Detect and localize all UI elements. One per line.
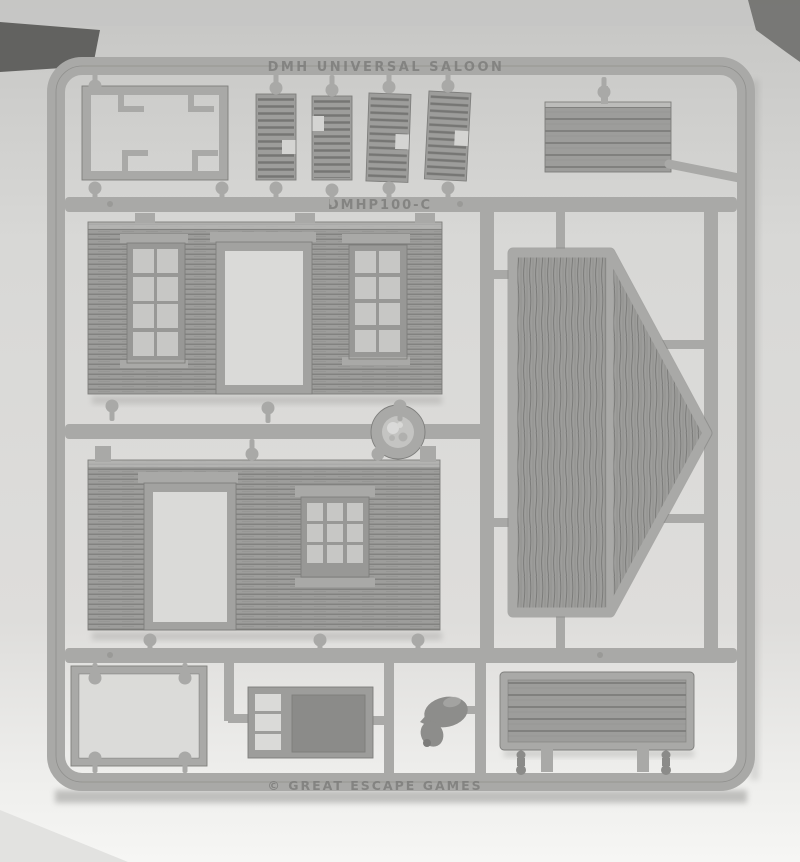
part-louvered-shutter-4: [424, 91, 472, 181]
part-small-fitting-left: [516, 751, 526, 776]
window-panes: [307, 503, 363, 563]
part-lower-wall: [88, 446, 442, 640]
embossed-brand-text: DMH UNIVERSAL SALOON: [268, 60, 505, 75]
runner-vertical-left-of-roof: [480, 197, 494, 663]
table-top-panel: [292, 695, 365, 752]
upper-wall-window-right: [342, 234, 410, 365]
part-upper-wall: [88, 213, 442, 404]
sprue-photo-canvas: DMH UNIVERSAL SALOON DMHP100-C © GREAT E…: [0, 0, 800, 862]
embossed-product-code: DMHP100-C: [328, 198, 432, 213]
lower-wall-window: [295, 486, 375, 587]
embossed-copyright-text: © GREAT ESCAPE GAMES: [267, 778, 482, 793]
part-louvered-shutter-1: [256, 94, 297, 180]
part-louvered-shutter-3: [366, 93, 412, 182]
upper-wall-window-left: [120, 234, 188, 368]
part-louvered-shutter-2: [311, 96, 352, 180]
sprue-photo: DMH UNIVERSAL SALOON DMHP100-C © GREAT E…: [0, 0, 800, 862]
part-small-fitting-right: [661, 751, 671, 776]
runner-rail-lower: [65, 648, 737, 663]
shelf-cells: [255, 694, 281, 750]
lower-wall-doorway: [138, 472, 238, 630]
paper-top-strip: [0, 0, 800, 26]
upper-wall-doorway: [210, 232, 316, 394]
